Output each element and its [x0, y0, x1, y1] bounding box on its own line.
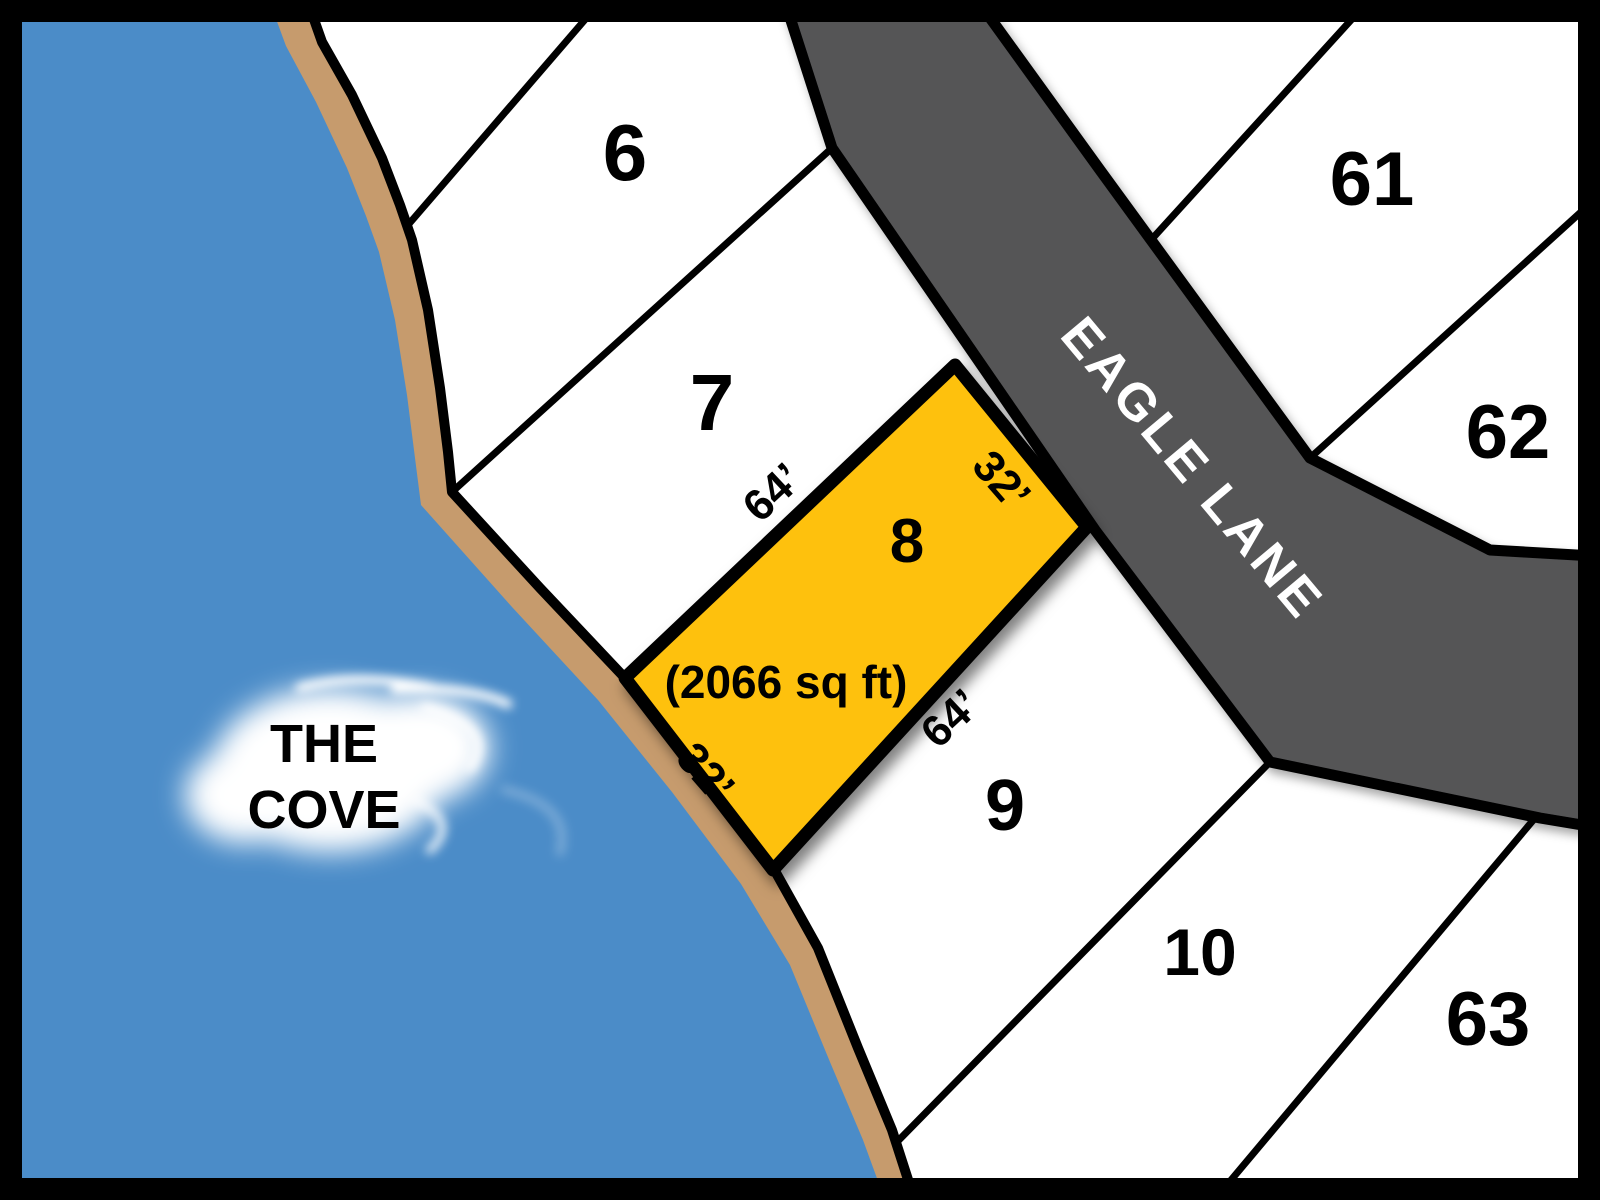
- lot-8-area-label: (2066 sq ft): [665, 656, 908, 708]
- water-name-line2: COVE: [247, 780, 400, 840]
- plat-map-canvas: EAGLE LANE THE COVE 6 7 9 10 61 62 63 8 …: [0, 0, 1600, 1200]
- lot-9-label: 9: [985, 766, 1025, 846]
- plat-map: EAGLE LANE THE COVE 6 7 9 10 61 62 63 8 …: [0, 0, 1600, 1200]
- lot-8-label: 8: [890, 507, 924, 576]
- water-name-line1: THE: [270, 714, 378, 774]
- lot-61-label: 61: [1330, 137, 1415, 222]
- lot-7-label: 7: [690, 358, 735, 447]
- lot-10-label: 10: [1163, 915, 1236, 989]
- lot-63-label: 63: [1446, 977, 1531, 1062]
- lot-6-label: 6: [603, 108, 648, 197]
- lot-62-label: 62: [1466, 390, 1551, 475]
